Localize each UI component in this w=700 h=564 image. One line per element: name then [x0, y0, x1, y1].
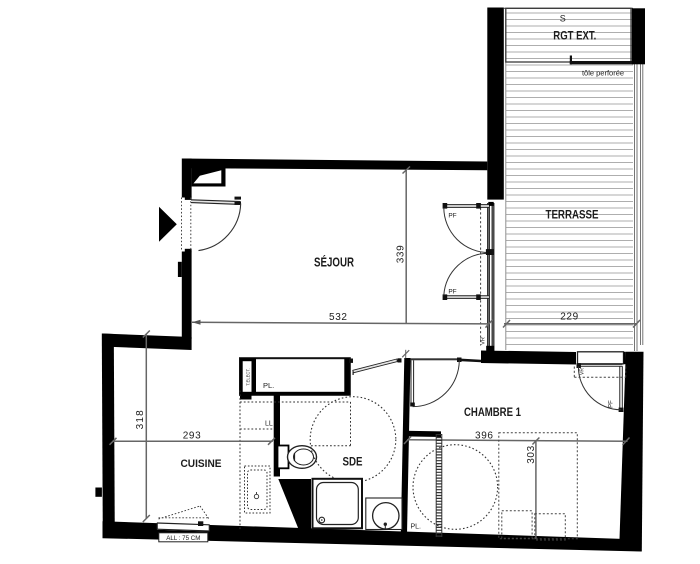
svg-text:PF: PF [448, 289, 456, 296]
svg-text:S: S [560, 14, 566, 24]
svg-text:318: 318 [135, 409, 146, 429]
svg-text:tôle perforée: tôle perforée [582, 69, 624, 78]
svg-text:396: 396 [475, 430, 494, 441]
svg-text:293: 293 [183, 431, 202, 442]
svg-text:229: 229 [560, 312, 579, 323]
svg-text:532: 532 [329, 312, 348, 323]
svg-text:VR: VR [580, 368, 586, 375]
svg-text:LL: LL [265, 421, 273, 428]
svg-text:CHAMBRE 1: CHAMBRE 1 [464, 407, 521, 419]
svg-text:PL.: PL. [411, 524, 422, 531]
svg-text:PF: PF [448, 213, 456, 220]
svg-text:SÉJOUR: SÉJOUR [314, 255, 354, 270]
svg-text:339: 339 [396, 245, 407, 264]
svg-text:303: 303 [526, 445, 537, 464]
svg-text:ALL : 75 CM: ALL : 75 CM [166, 535, 200, 542]
svg-text:RGT EXT.: RGT EXT. [553, 30, 596, 42]
svg-text:T.ELECT.: T.ELECT. [246, 368, 251, 385]
svg-text:PF: PF [609, 400, 615, 408]
svg-text:PL.: PL. [263, 381, 274, 390]
svg-text:SDE: SDE [343, 455, 363, 469]
svg-text:VR: VR [480, 337, 486, 345]
svg-text:TERRASSE: TERRASSE [546, 208, 599, 222]
svg-text:CUISINE: CUISINE [181, 458, 222, 470]
